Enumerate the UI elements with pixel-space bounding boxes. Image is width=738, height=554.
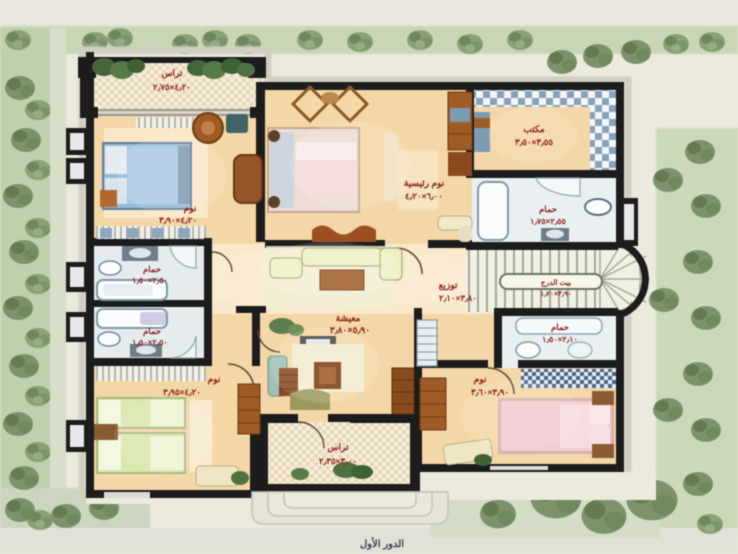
svg-text:حمام: حمام: [551, 322, 570, 333]
svg-text:حمام: حمام: [539, 204, 558, 215]
svg-text:معيشة: معيشة: [336, 313, 361, 323]
svg-text:تراس: تراس: [162, 68, 183, 79]
svg-text:٣٫٠٠×٢٫٣٥: ٣٫٠٠×٢٫٣٥: [319, 456, 357, 466]
svg-text:٤٫٢٠×٣٫٩٥: ٤٫٢٠×٣٫٩٥: [163, 387, 201, 397]
svg-text:٤٫٢٠×٣٫٩٠: ٤٫٢٠×٣٫٩٠: [159, 215, 197, 225]
svg-text:مكتب: مكتب: [523, 124, 545, 135]
svg-text:٣٫٩٠×١٫٢٠: ٣٫٩٠×١٫٢٠: [540, 291, 571, 298]
svg-text:تراس: تراس: [328, 442, 349, 453]
svg-text:٢٫٥٥×١٫٧٥: ٢٫٥٥×١٫٧٥: [530, 217, 566, 226]
svg-text:حمام: حمام: [143, 326, 162, 337]
svg-text:٦٫٠٠×٤٫٢٠: ٦٫٠٠×٤٫٢٠: [405, 191, 443, 201]
svg-text:٢٫١٠×١٫٥٠: ٢٫١٠×١٫٥٠: [542, 335, 578, 344]
svg-text:توزيع: توزيع: [439, 280, 458, 291]
svg-text:نوم: نوم: [474, 374, 487, 385]
svg-text:نوم: نوم: [208, 374, 221, 385]
svg-text:٤٫٢٠×٢٫٧٥: ٤٫٢٠×٢٫٧٥: [153, 82, 191, 92]
svg-text:بيت الدرج: بيت الدرج: [541, 278, 572, 288]
svg-text:٣٫٨٠×٢٫١٠: ٣٫٨٠×٢٫١٠: [439, 293, 477, 303]
svg-text:نوم: نوم: [184, 203, 197, 214]
svg-text:٥٫٩٠×٣٫٨٠: ٥٫٩٠×٣٫٨٠: [330, 325, 370, 335]
svg-text:حمام: حمام: [143, 264, 162, 275]
svg-text:نوم رئيسية: نوم رئيسية: [404, 178, 444, 189]
svg-text:٣٫٥٥×٣٫٥٠: ٣٫٥٥×٣٫٥٠: [515, 137, 553, 147]
svg-text:الدور الأول: الدور الأول: [360, 538, 404, 550]
svg-text:٣٫٩٠×٣٫٦٠: ٣٫٩٠×٣٫٦٠: [471, 387, 509, 397]
svg-text:٢٫٥٠×١٫٥٠: ٢٫٥٠×١٫٥٠: [132, 276, 168, 285]
svg-text:٢٫٥٠×١٫٥٠: ٢٫٥٠×١٫٥٠: [132, 338, 168, 347]
